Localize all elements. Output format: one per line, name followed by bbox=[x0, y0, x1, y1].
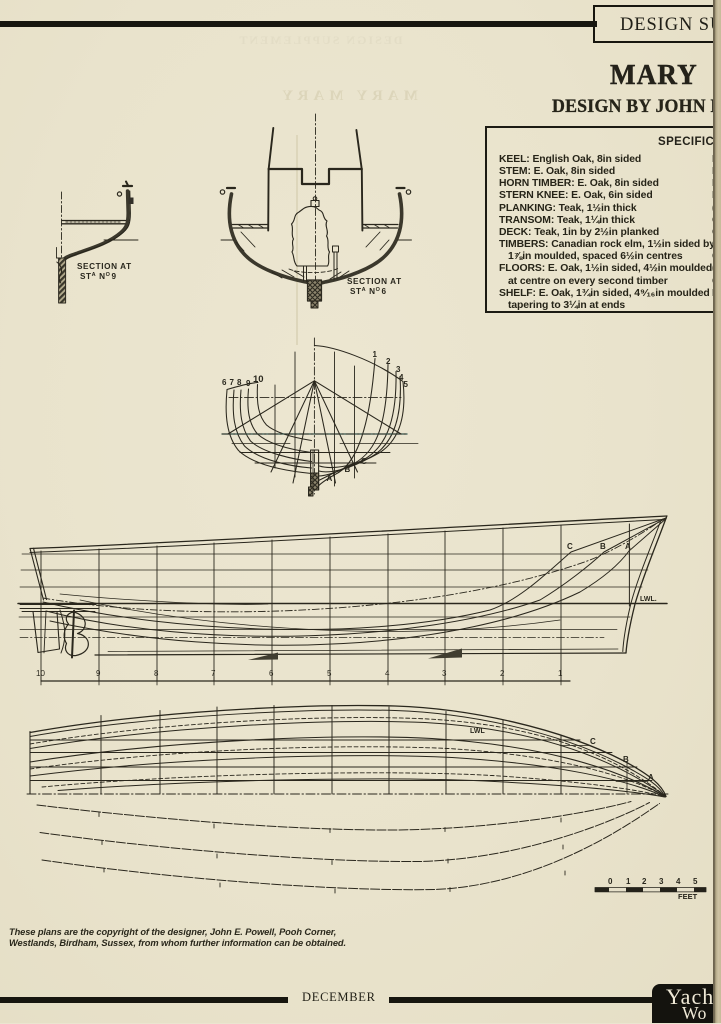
svg-text:B: B bbox=[623, 755, 629, 764]
svg-text:C: C bbox=[590, 737, 596, 746]
svg-text:B: B bbox=[345, 465, 351, 474]
svg-text:2: 2 bbox=[642, 877, 647, 886]
svg-text:5: 5 bbox=[327, 669, 332, 678]
svg-text:LWL.: LWL. bbox=[640, 596, 657, 603]
svg-text:4: 4 bbox=[385, 669, 390, 678]
svg-text:STA NO6: STA NO6 bbox=[350, 287, 387, 296]
svg-text:9: 9 bbox=[96, 669, 101, 678]
svg-text:3: 3 bbox=[659, 877, 664, 886]
svg-text:8: 8 bbox=[154, 669, 159, 678]
svg-text:SECTION AT: SECTION AT bbox=[77, 262, 132, 271]
svg-text:FEET: FEET bbox=[678, 892, 698, 901]
svg-text:A: A bbox=[648, 773, 654, 782]
svg-text:9: 9 bbox=[246, 379, 251, 388]
svg-text:6: 6 bbox=[269, 669, 274, 678]
svg-text:A: A bbox=[327, 474, 333, 483]
svg-text:4: 4 bbox=[676, 877, 681, 886]
svg-text:SECTION AT: SECTION AT bbox=[347, 277, 402, 286]
svg-text:7: 7 bbox=[230, 378, 235, 387]
svg-text:3: 3 bbox=[442, 669, 447, 678]
svg-text:8: 8 bbox=[237, 378, 242, 387]
svg-text:2: 2 bbox=[386, 357, 391, 366]
svg-text:10: 10 bbox=[253, 374, 264, 385]
svg-text:1: 1 bbox=[558, 669, 563, 678]
svg-text:LWL: LWL bbox=[470, 728, 485, 735]
svg-text:7: 7 bbox=[211, 669, 216, 678]
svg-text:1: 1 bbox=[373, 350, 378, 359]
svg-text:5: 5 bbox=[693, 877, 698, 886]
svg-text:A: A bbox=[625, 542, 631, 551]
svg-text:B: B bbox=[600, 542, 606, 551]
svg-text:C: C bbox=[567, 542, 573, 551]
svg-text:5: 5 bbox=[404, 380, 409, 389]
svg-text:STA NO9: STA NO9 bbox=[80, 272, 117, 281]
svg-text:C: C bbox=[361, 457, 367, 466]
svg-text:2: 2 bbox=[500, 669, 505, 678]
svg-text:0: 0 bbox=[608, 877, 613, 886]
svg-text:6: 6 bbox=[222, 378, 227, 387]
svg-text:10: 10 bbox=[36, 669, 45, 678]
svg-text:1: 1 bbox=[626, 877, 631, 886]
